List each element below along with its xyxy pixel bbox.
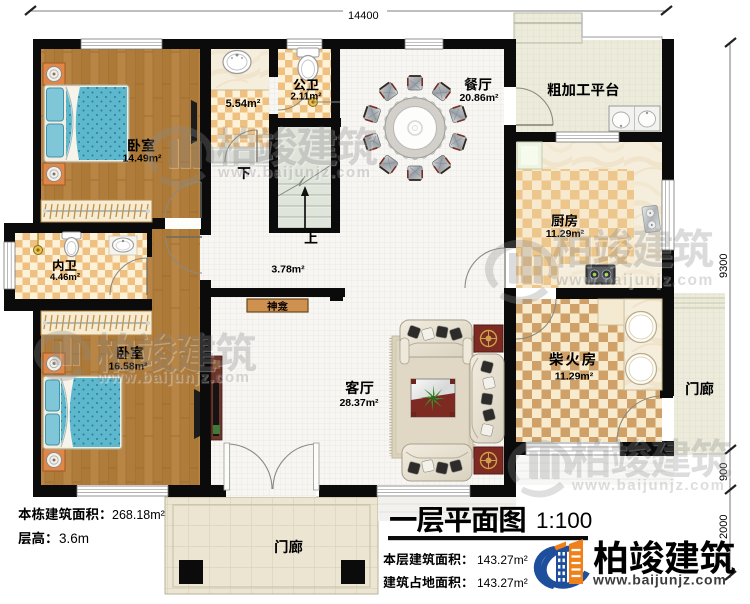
svg-text:www.baijunjz.com: www.baijunjz.com [96,369,250,386]
svg-text:www.baijunjz.com: www.baijunjz.com [217,164,371,181]
svg-text:3.78m²: 3.78m² [271,264,305,276]
svg-text:14400: 14400 [348,10,379,22]
svg-text:14.49m²: 14.49m² [122,153,162,165]
svg-text:www.baijunjz.com: www.baijunjz.com [571,477,725,494]
svg-text:4.46m²: 4.46m² [50,272,80,283]
svg-text:11.29m²: 11.29m² [555,371,594,383]
svg-text:28.37m²: 28.37m² [339,397,379,409]
svg-text:1:100: 1:100 [536,508,592,533]
svg-text:www.baijunjz.com: www.baijunjz.com [555,272,714,289]
svg-text:20.86m²: 20.86m² [459,92,499,104]
svg-text:143.27m²: 143.27m² [477,576,528,590]
svg-text:143.27m²: 143.27m² [477,553,528,567]
svg-text:5.54m²: 5.54m² [226,98,261,110]
svg-text:9300: 9300 [718,254,730,278]
svg-text:2.11m²: 2.11m² [290,92,322,103]
svg-text:268.18m²: 268.18m² [112,508,165,522]
svg-text:3.6m: 3.6m [59,531,89,546]
svg-text:2000: 2000 [718,515,730,539]
svg-text:www.baijunjz.com: www.baijunjz.com [592,572,727,588]
